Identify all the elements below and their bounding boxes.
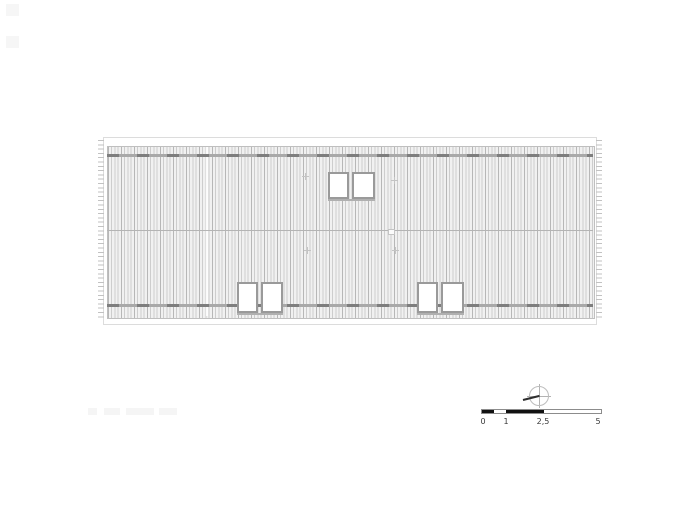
- scale-label: 5: [595, 417, 600, 426]
- north-arrow-icon: [521, 382, 555, 410]
- drain-cross-mark: [392, 247, 399, 254]
- drain-cross-mark: [304, 247, 311, 254]
- drawing-page: 0 1 2,5 5: [0, 0, 700, 531]
- drain-cross-mark: [391, 177, 398, 184]
- skylight: [237, 282, 258, 313]
- ridge-vent-mark: [388, 229, 395, 235]
- scale-label: 1: [503, 417, 508, 426]
- faded-title-block: [159, 408, 177, 415]
- skylight: [441, 282, 464, 313]
- skylight-sill-line: [237, 313, 283, 315]
- corner-page-mark: [6, 4, 19, 16]
- scale-label: 2,5: [537, 417, 550, 426]
- scale-bar: 0 1 2,5 5: [481, 408, 600, 430]
- skylight-sill-line: [417, 313, 464, 315]
- faded-title-block: [88, 408, 97, 415]
- skylight: [352, 172, 375, 199]
- faded-title-block: [104, 408, 120, 415]
- faded-title-block: [126, 408, 154, 415]
- skylight: [328, 172, 349, 199]
- scale-bar-labels: 0 1 2,5 5: [481, 417, 600, 429]
- scale-bar-black-segment: [482, 410, 494, 413]
- skylight: [417, 282, 438, 313]
- scale-label: 0: [480, 417, 485, 426]
- corner-page-mark: [6, 36, 19, 48]
- drain-cross-mark: [302, 173, 309, 180]
- roof-annotations: [0, 0, 700, 531]
- skylight-sill-line: [328, 199, 375, 201]
- scale-bar-black-segment: [506, 410, 544, 413]
- skylight: [261, 282, 283, 313]
